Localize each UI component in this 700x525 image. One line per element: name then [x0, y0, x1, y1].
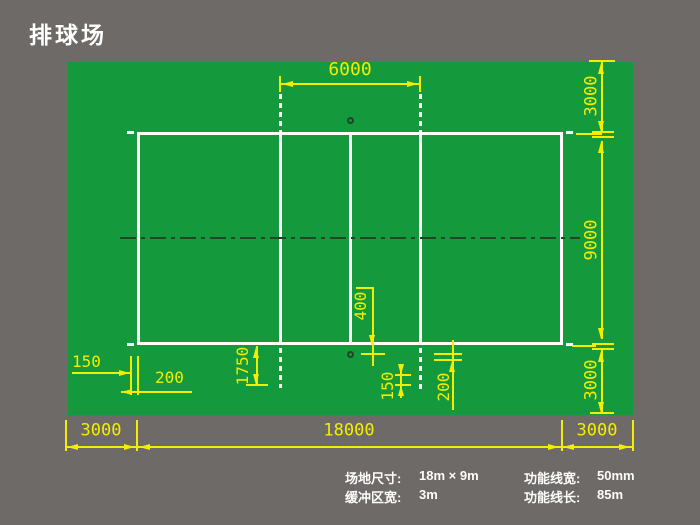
- dim-tick: [137, 356, 139, 395]
- net-post-top-circle: [347, 117, 354, 124]
- net-post-bottom-circle: [347, 351, 354, 358]
- dim-150-left-label: 150: [72, 354, 101, 370]
- volleyball-court-diagram: 排球场 6000 150 200 1750 400: [0, 0, 700, 525]
- dim-9000-label: 9000: [584, 220, 601, 261]
- dim-arrow: [369, 335, 375, 346]
- attack-line-extension-top-left: [279, 94, 282, 132]
- dim-tick: [592, 348, 614, 350]
- dim-tick: [434, 359, 462, 361]
- dim-arrow: [598, 328, 604, 339]
- legend-field-size-value: 18m × 9m: [419, 468, 479, 483]
- dim-tick: [576, 133, 602, 135]
- dim-arrow: [407, 81, 418, 87]
- dim-tick: [419, 76, 421, 92]
- legend-line-width-value: 50mm: [597, 468, 635, 483]
- dim-tick: [279, 76, 281, 92]
- corner-dash-bottom-left: [127, 343, 134, 346]
- attack-line-extension-bottom-right: [419, 348, 422, 390]
- legend-line-length-value: 85m: [597, 487, 623, 502]
- dim-tick: [590, 412, 614, 414]
- dim-arrow: [124, 444, 135, 450]
- dim-150-center-label: 150: [380, 372, 396, 401]
- dim-3000-bottom-right-label: 3000: [577, 423, 618, 440]
- dim-arrow: [449, 361, 455, 372]
- dim-arrow: [398, 385, 404, 396]
- dim-1750-label: 1750: [235, 347, 251, 386]
- corner-dash-top-right: [566, 131, 573, 134]
- dim-arrow: [619, 444, 630, 450]
- attack-line-extension-top-right: [419, 94, 422, 132]
- dim-arrow: [563, 444, 574, 450]
- dim-tick: [572, 345, 596, 347]
- dim-200-left-label: 200: [155, 370, 184, 386]
- dim-arrow: [548, 444, 559, 450]
- page-title: 排球场: [29, 16, 107, 50]
- dim-arrow: [67, 444, 78, 450]
- dim-tick: [592, 136, 614, 138]
- dim-arrow: [119, 370, 130, 376]
- dim-3000-bottom-left-label: 3000: [81, 423, 122, 440]
- legend-line-length-label: 功能线长:: [524, 487, 580, 506]
- dim-arrow: [121, 389, 132, 395]
- dim-200-center-label: 200: [436, 373, 452, 402]
- dim-3000-top-label: 3000: [584, 76, 601, 117]
- dim-tick: [434, 353, 462, 355]
- legend-buffer-width-label: 缓冲区宽:: [345, 487, 401, 506]
- attack-line-extension-bottom-left: [279, 348, 282, 388]
- legend-buffer-width-value: 3m: [419, 487, 438, 502]
- dim-tick: [592, 343, 614, 345]
- dim-18000-label: 18000: [323, 423, 374, 440]
- dim-arrow: [253, 347, 259, 358]
- dim-400-label: 400: [353, 292, 369, 321]
- legend-field-size-label: 场地尺寸:: [345, 468, 401, 487]
- dim-arrow: [398, 364, 404, 375]
- dim-arrow: [139, 444, 150, 450]
- corner-dash-top-left: [127, 131, 134, 134]
- center-axis-line: [120, 237, 580, 239]
- dim-arrow: [598, 63, 604, 74]
- legend-line-width-label: 功能线宽:: [524, 468, 580, 487]
- dim-6000-label: 6000: [328, 61, 371, 79]
- dim-tick: [356, 287, 374, 289]
- dim-arrow: [598, 142, 604, 153]
- dim-tick: [361, 353, 385, 355]
- dim-3000-right-bottom-label: 3000: [584, 360, 601, 401]
- dim-6000-line: [280, 83, 420, 85]
- dim-arrow: [282, 81, 293, 87]
